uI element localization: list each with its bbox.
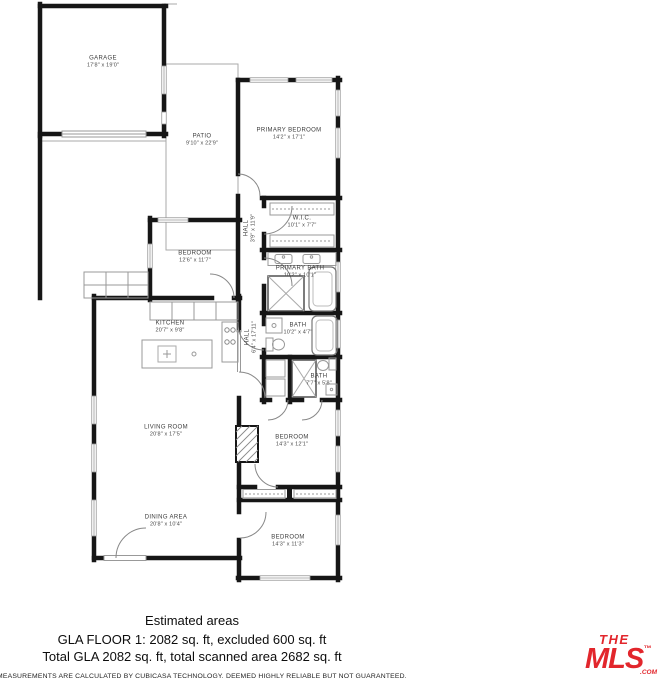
measurements-disclaimer: MEASUREMENTS ARE CALCULATED BY CUBICASA … — [0, 673, 407, 680]
floorplan-svg — [0, 0, 662, 689]
kitchen-fixtures — [84, 272, 238, 368]
bath-fixtures — [266, 253, 337, 398]
floorplan-page: GARAGE17'8" x 19'0" PATIO9'10" x 22'9" P… — [0, 0, 662, 689]
chimney-hatch — [236, 426, 258, 462]
wall-segments — [40, 4, 340, 580]
gla-total-line: Total GLA 2082 sq. ft, total scanned are… — [0, 649, 384, 666]
closet-divider — [287, 487, 292, 500]
garage-door — [62, 131, 241, 561]
estimated-areas-title: Estimated areas — [0, 613, 384, 628]
the-mls-logo: THE MLS™ .COM — [584, 633, 660, 677]
gla-floor1-line: GLA FLOOR 1: 2082 sq. ft, excluded 600 s… — [0, 632, 384, 649]
patio-outline — [40, 4, 238, 250]
estimated-areas-block: Estimated areas GLA FLOOR 1: 2082 sq. ft… — [0, 613, 384, 665]
window-glyphs — [92, 66, 341, 580]
mls-logo-tm: ™ — [643, 644, 650, 653]
